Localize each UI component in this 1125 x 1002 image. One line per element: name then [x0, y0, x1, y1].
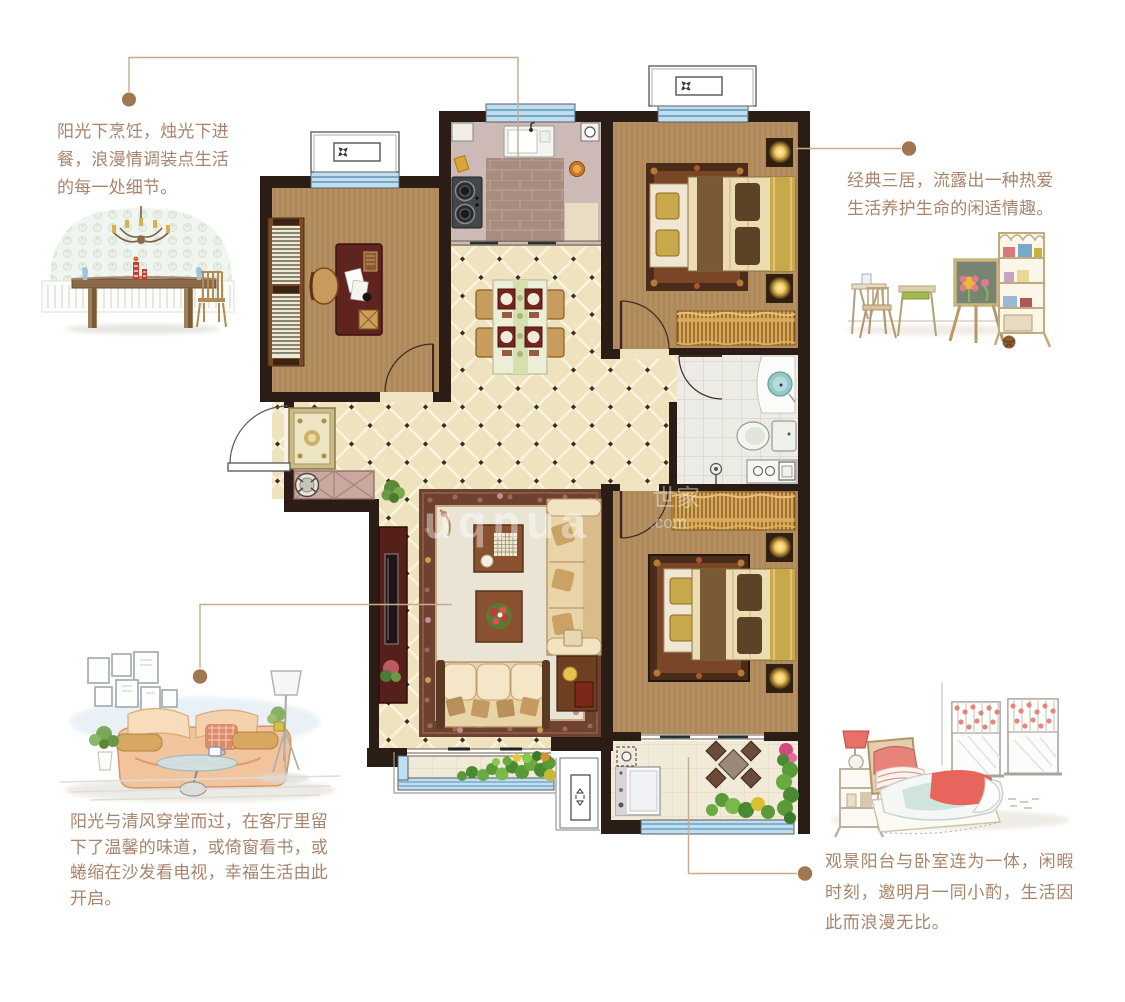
svg-text:uqnua: uqnua — [424, 496, 592, 548]
svg-text:世家: 世家 — [652, 485, 700, 512]
svg-text:.com: .com — [650, 513, 687, 532]
